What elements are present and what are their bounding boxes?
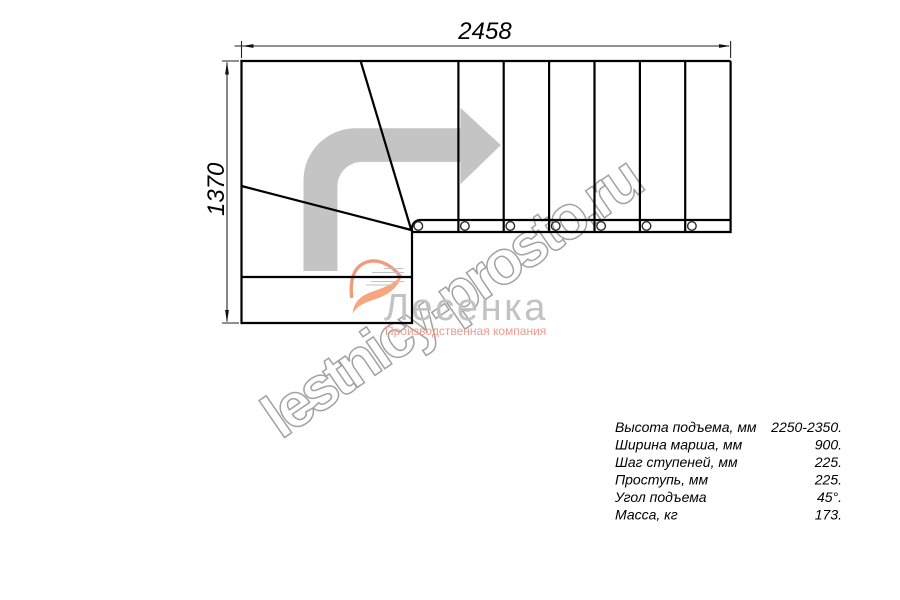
svg-text:Масса, кг: Масса, кг (615, 507, 678, 523)
svg-text:Ширина марша, мм: Ширина марша, мм (615, 437, 743, 453)
svg-text:Проступь, мм: Проступь, мм (615, 472, 709, 488)
svg-text:Производственная компания: Производственная компания (385, 324, 546, 338)
svg-text:2250-2350.: 2250-2350. (770, 419, 842, 435)
svg-text:45°.: 45°. (817, 489, 842, 505)
svg-text:225.: 225. (814, 454, 842, 470)
svg-text:900.: 900. (815, 437, 842, 453)
svg-text:Угол подъема: Угол подъема (614, 489, 707, 505)
svg-text:1370: 1370 (203, 162, 230, 216)
svg-text:2458: 2458 (457, 18, 512, 45)
svg-text:173.: 173. (815, 507, 842, 523)
svg-text:Шаг ступеней, мм: Шаг ступеней, мм (615, 454, 738, 470)
svg-text:Высота подъема, мм: Высота подъема, мм (615, 419, 757, 435)
svg-text:225.: 225. (814, 472, 842, 488)
